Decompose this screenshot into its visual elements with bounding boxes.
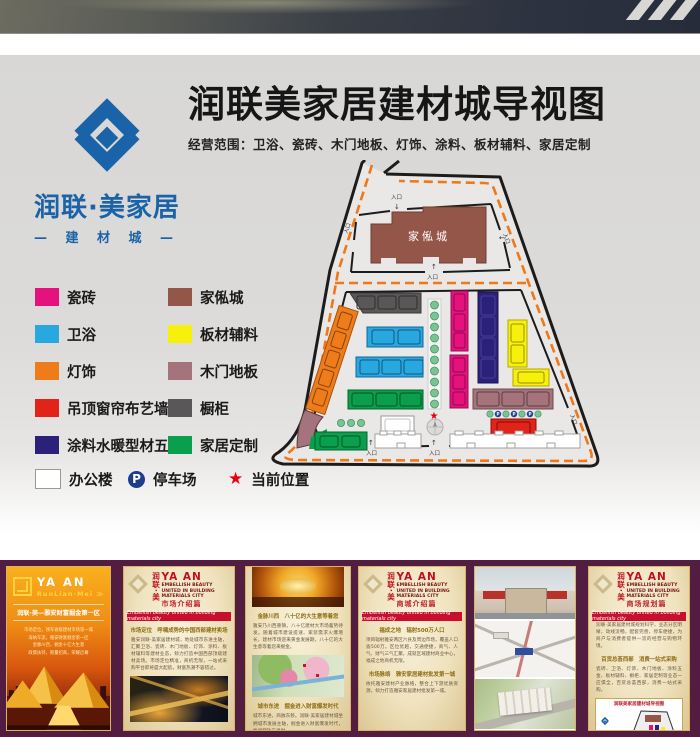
road-photo <box>0 0 700 34</box>
legend-label: 涂料水暖型材五金 <box>67 435 183 456</box>
gem-logo-icon <box>593 574 613 594</box>
aerial-render-photo <box>475 679 575 729</box>
pyramids-graphic <box>7 656 110 730</box>
legend-item-office: 办公楼 <box>35 469 113 489</box>
legend-item: 吊顶窗帘布艺墙纸 <box>35 398 183 418</box>
poster: 润联·美家居 — 建 材 城 — 润联美家居建材城导视图 经营范围：卫浴、瓷砖、… <box>0 0 700 737</box>
brand-vertical: 润联·美 <box>387 572 395 601</box>
tree-lane <box>428 299 441 409</box>
section-tag: 商场规划篇 <box>627 601 689 608</box>
section-body: 雅安润联·美家居建材城，地处城市东进主轴，汇聚卫浴、瓷砖、木门地板、灯饰、涂料、… <box>131 637 227 673</box>
mini-map-shape <box>627 710 679 731</box>
parking-icon: P <box>497 412 500 417</box>
brochure-strip: YA AN RunLian·Mei ≫ 润联·美—雅安财富掘金第一区 市场定位，… <box>0 560 700 737</box>
location-sketch-map <box>475 619 575 679</box>
brand-caps: EMBELLISH BEAUTY UNITED IN BUILDING MATE… <box>162 583 224 600</box>
mini-wayfinding-map: 润联美家居建材城导视图 <box>595 698 683 731</box>
entrance-label: 入口 <box>391 194 402 201</box>
legend-item: 木门地板 <box>168 361 258 381</box>
page-title: 润联美家居建材城导视图 <box>188 85 688 126</box>
yaan-title: YA AN <box>162 572 224 583</box>
legend-swatch <box>35 362 59 380</box>
legend-item: 家居定制 <box>168 435 258 455</box>
building-notch <box>381 258 396 264</box>
brochure-render-panel <box>474 566 576 731</box>
cover-line: 金脉川西，掘金十亿大生意 <box>7 642 110 650</box>
home-custom-block <box>348 390 423 409</box>
brand-diamond-icon <box>63 91 151 179</box>
paint-hardware-block <box>478 292 498 383</box>
legend-label: 家俬城 <box>200 287 244 308</box>
section-heading: 城市东进 掘金进入财富爆发时代 <box>250 702 346 710</box>
cabinet-block <box>350 293 421 313</box>
page-subtitle: 经营范围：卫浴、瓷砖、木门地板、灯饰、涂料、板材辅料、家居定制 <box>188 134 688 153</box>
yaan-logo-icon <box>13 577 32 596</box>
section-body: 依托雅安建材产业脉络，整合上下游优质资源，倾力打造雅安家居建材批发第一城。 <box>366 681 458 695</box>
section-body: 润联·美家居建材城规划科学，业态分区明晰，动线流畅，配套完善，停车便捷，为商户与… <box>596 622 682 650</box>
brand-subname: — 建 材 城 — <box>18 227 196 246</box>
door-floor-block <box>473 389 553 409</box>
tree-trio <box>337 419 364 426</box>
parking-icon: P <box>128 471 145 488</box>
mini-legend <box>600 711 630 731</box>
section-tag: 商城介绍篇 <box>397 601 459 608</box>
legend-swatch <box>168 325 192 343</box>
legend-item: 灯饰 <box>35 361 96 381</box>
section-body: 瓷砖、卫浴、灯饰、木门地板、涂料五金、板材辅料、橱柜、家居定制等业态一应俱全，百… <box>596 666 682 694</box>
yaan-title: YA AN <box>37 575 104 589</box>
legend-label: 办公楼 <box>69 469 113 490</box>
red-banner: Embellish beauty united in building mate… <box>127 612 231 621</box>
gem-logo-icon <box>363 574 383 594</box>
legend-item: 涂料水暖型材五金 <box>35 435 183 455</box>
brochure-planning-panel: 润联·美 YA AN EMBELLISH BEAUTY UNITED IN BU… <box>588 566 690 731</box>
gold-coins-photo <box>252 567 344 607</box>
section-heading: 福成之地 辐射500万人口 <box>363 626 461 634</box>
legend-label: 吊顶窗帘布艺墙纸 <box>67 398 183 419</box>
red-banner: Embellish beauty united in building mate… <box>362 612 462 621</box>
main-panel: 润联·美家居 — 建 材 城 — 润联美家居建材城导视图 经营范围：卫浴、瓷砖、… <box>0 55 700 560</box>
parking-icon: P <box>529 412 532 417</box>
section-body: 城市东进，商脉东移。润联·美家居建材城坐拥城市发展主轴，掘金进入财富爆发时代，抢… <box>253 713 343 731</box>
entrance-arrow-icon: ↑ <box>431 263 437 271</box>
tile-block <box>450 291 468 408</box>
legend-item: 家俬城 <box>168 287 244 307</box>
legend-swatch <box>168 288 192 306</box>
legend-item: 瓷砖 <box>35 287 96 307</box>
legend-swatch <box>168 362 192 380</box>
night-highway-photo <box>130 676 228 722</box>
brochure-cover-panel: YA AN RunLian·Mei ≫ 润联·美—雅安财富掘金第一区 市场定位，… <box>6 566 111 731</box>
yaan-title: YA AN <box>397 572 459 583</box>
legend-swatch <box>168 436 192 454</box>
entrance-arrow-icon: ↓ <box>394 203 400 211</box>
brand-name: 润联·美家居 <box>18 187 196 224</box>
legend-label: 木门地板 <box>200 361 258 382</box>
legend-label: 瓷砖 <box>67 287 96 308</box>
section-body: 雅安乃川西重镇，八十亿建材大市场蓄势待发。随着城市建设提速、家装需求火爆增长，建… <box>253 623 343 651</box>
section-heading: 金脉川西 八十亿的大生意等着您 <box>250 612 346 620</box>
legend-item: 橱柜 <box>168 398 229 418</box>
brand-logo-block: 润联·美家居 — 建 材 城 — <box>18 91 196 251</box>
planning-map-image <box>252 655 344 697</box>
brand-vertical: 润联·美 <box>617 572 625 601</box>
mini-map-title: 润联美家居建材城导视图 <box>596 701 682 707</box>
parking-icon: P <box>513 412 516 417</box>
legend-swatch <box>168 399 192 417</box>
legend-item: 卫浴 <box>35 324 96 344</box>
legend-label: 家居定制 <box>200 435 258 456</box>
cover-line: 海纳车流，雅安财富掘金第一区 <box>7 635 110 643</box>
gem-logo-icon <box>128 574 148 594</box>
legend-label: 橱柜 <box>200 398 229 419</box>
current-location-star-icon: ★ <box>228 471 243 488</box>
brochure-market-inner-panel: 金脉川西 八十亿的大生意等着您 雅安乃川西重镇，八十亿建材大市场蓄势待发。随着城… <box>245 566 351 731</box>
entrance-arrow-icon: ← <box>499 234 505 242</box>
building-notch <box>463 258 476 264</box>
legend-label: 卫浴 <box>67 324 96 345</box>
entrance-label: 入口 <box>429 450 440 457</box>
brand-vertical: 润联·美 <box>152 572 160 601</box>
entrance-arrow-icon: ↑ <box>431 439 437 447</box>
cover-line: 市场定位，领军省级建材市场第一城 <box>7 627 110 635</box>
crosswalk-stripe <box>670 0 700 20</box>
compass-icon <box>427 419 443 435</box>
legend-swatch <box>35 399 59 417</box>
legend-swatch <box>35 436 59 454</box>
brand-caps: EMBELLISH BEAUTY UNITED IN BUILDING MATE… <box>627 583 689 600</box>
red-banner: Embellish beauty united in building mate… <box>592 612 686 621</box>
section-heading: 百货总荟西部 消费一站式采购 <box>593 655 685 663</box>
legend-label: 灯饰 <box>67 361 96 382</box>
site-map: 家俬城 入口 ↓ 入口 入口 ← ↑ 入口 ↑ 入口 ↑ 入口 入口 → <box>253 160 665 505</box>
legend-swatch <box>35 288 59 306</box>
legend-item-parking: P 停车场 <box>128 469 197 489</box>
entrance-arrow-icon: ↑ <box>368 439 374 447</box>
cover-lines: 市场定位，领军省级建材市场第一城 海纳车流，雅安财富掘金第一区 金脉川西，掘金十… <box>7 627 110 658</box>
entrance-label: 入口 <box>427 274 438 281</box>
entry-spur <box>384 161 399 173</box>
yaan-title: YA AN <box>627 572 689 583</box>
legend-swatch <box>35 325 59 343</box>
brochure-city-panel: 润联·美 YA AN EMBELLISH BEAUTY UNITED IN BU… <box>358 566 466 731</box>
section-tag: 市场介绍篇 <box>162 601 224 608</box>
brand-diamond-icon <box>600 716 610 726</box>
home-custom-block-2 <box>315 432 367 450</box>
legend-item: 板材辅料 <box>168 324 258 344</box>
entrance-label: 入口 <box>366 450 377 457</box>
legend-label: 板材辅料 <box>200 324 258 345</box>
furniture-city-label: 家俬城 <box>408 229 450 243</box>
legend-swatch-office <box>35 469 61 489</box>
legend-label: 停车场 <box>153 469 197 490</box>
road-sheen <box>60 0 480 14</box>
cover-headline: 润联·美—雅安财富掘金第一区 <box>13 604 104 621</box>
brand-caps: EMBELLISH BEAUTY UNITED IN BUILDING MATE… <box>397 583 459 600</box>
runlianmei-label: RunLian·Mei ≫ <box>37 590 104 598</box>
section-body: 项目辐射雅安两区六县及周边市场，覆盖人口逾500万。区位优越，交通便捷，商气、人… <box>366 637 458 665</box>
section-heading: 市场定位 呼啸成势的中国西部建材卖场 <box>128 626 230 634</box>
section-heading: 市场脉络 雅安家居建材批发第一城 <box>363 670 461 678</box>
mall-render-photo <box>475 567 575 619</box>
title-block: 润联美家居建材城导视图 经营范围：卫浴、瓷砖、木门地板、灯饰、涂料、板材辅料、家… <box>188 85 688 153</box>
brochure-market-panel: 润联·美 YA AN EMBELLISH BEAUTY UNITED IN BU… <box>123 566 235 731</box>
